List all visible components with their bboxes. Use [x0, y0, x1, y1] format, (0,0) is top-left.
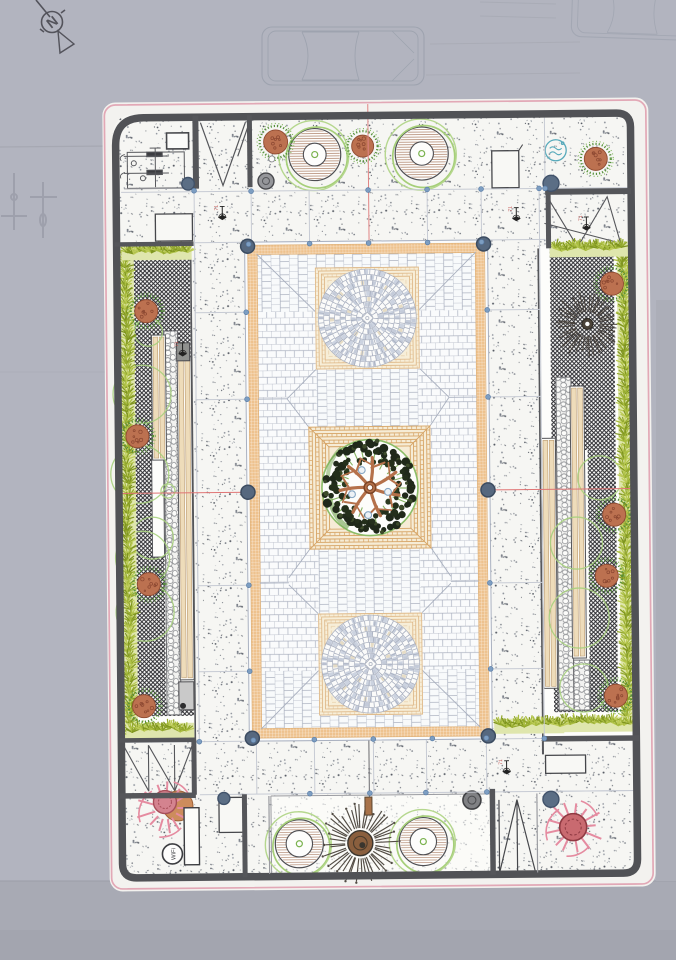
svg-text:WiFi: WiFi [171, 848, 177, 860]
svg-text:71: 71 [174, 341, 180, 347]
svg-text:71: 71 [578, 215, 584, 221]
svg-text:71: 71 [498, 759, 504, 765]
svg-text:71: 71 [508, 206, 514, 212]
svg-text:71: 71 [214, 205, 220, 211]
